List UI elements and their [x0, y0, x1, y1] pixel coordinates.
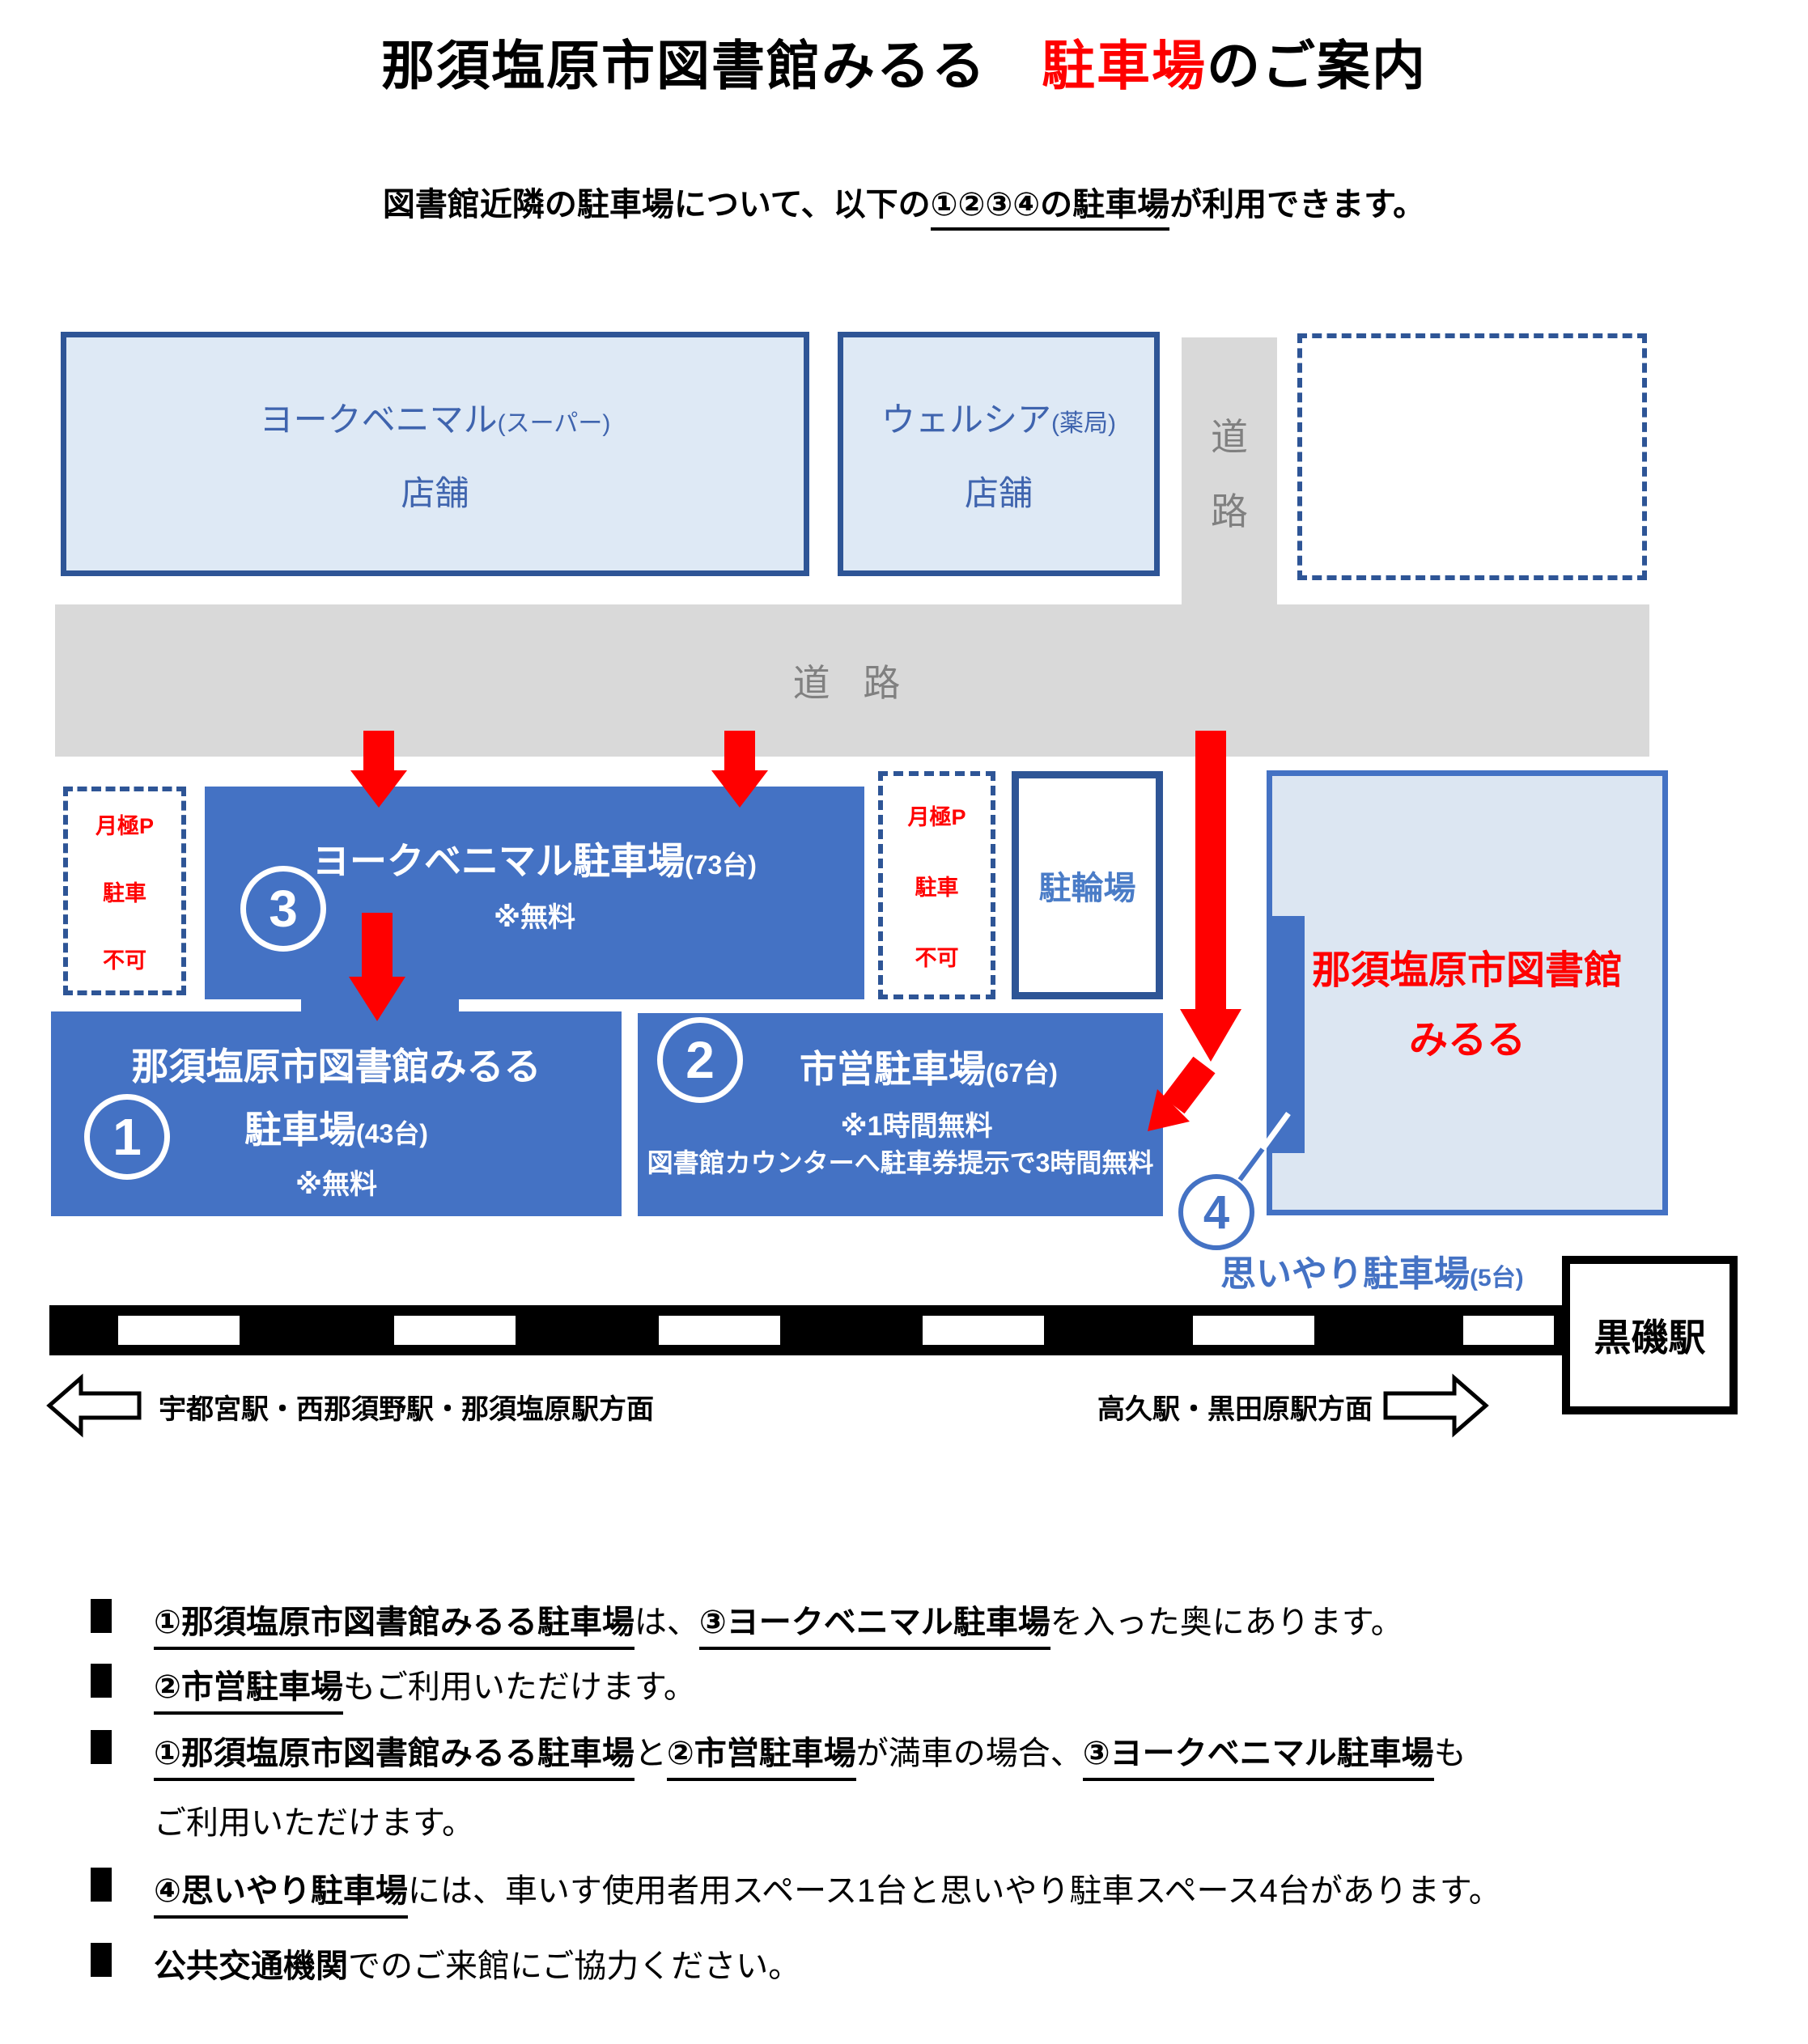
direction-right-label: 高久駅・黒田原駅方面	[1094, 1387, 1373, 1427]
subtitle-pre: 図書館近隣の駐車場について、以下の	[383, 187, 931, 223]
lot1-number-badge: 1	[84, 1094, 170, 1180]
railway-track	[49, 1305, 1562, 1355]
lot2-name: 市営駐車場	[800, 1048, 986, 1090]
note-segment: も	[1434, 1736, 1466, 1771]
vacant-lot-box	[1297, 333, 1647, 580]
bullet-square-icon	[91, 1664, 112, 1698]
lot3-capacity: (73台)	[685, 850, 757, 880]
lot3-number-badge: 3	[240, 866, 326, 952]
note-line: ①那須塩原市図書館みるる駐車場と②市営駐車場が満車の場合、③ヨークベニマル駐車場…	[154, 1727, 1466, 1774]
lot4-courtesy-parking-strip	[1267, 916, 1305, 1153]
monthly-left-line3: 不可	[103, 943, 146, 974]
lot2-municipal-parking: 市営駐車場(67台) ※1時間無料 図書館カウンターへ駐車券提示で3時間無料 2	[638, 1013, 1163, 1216]
railway-dash	[118, 1316, 240, 1345]
lot3-york-benimaru-parking: ヨークベニマル駐車場(73台) ※無料 3	[205, 787, 864, 999]
road-vertical-label-2: 路	[1211, 482, 1248, 536]
bicycle-parking-box: 駐輪場	[1012, 771, 1163, 999]
bicycle-parking-label: 駐輪場	[1039, 862, 1136, 909]
note-segment: が満車の場合、	[856, 1736, 1083, 1771]
lot2-number-badge: 2	[657, 1017, 743, 1103]
note-segment: ①那須塩原市図書館みるる駐車場	[154, 1736, 634, 1781]
road-vertical: 道 路	[1182, 337, 1277, 605]
store-york-name: ヨークベニマル	[260, 401, 498, 439]
note-segment: ご利用いただけます。	[154, 1805, 474, 1841]
kuroiso-station-label: 黒磯駅	[1594, 1308, 1706, 1362]
note-segment: には、車いす使用者用スペース1台と思いやり駐車スペース4台があります。	[408, 1873, 1501, 1909]
note-segment: ②市営駐車場	[154, 1669, 343, 1715]
store-welcia-label2: 店舗	[965, 466, 1033, 515]
lot4-label-text: 思いやり駐車場	[1220, 1254, 1470, 1294]
bullet-square-icon	[91, 1730, 112, 1764]
store-york-type: (スーパー)	[498, 410, 611, 437]
note-line: ご利用いただけます。	[154, 1796, 474, 1843]
lot4-number: 4	[1203, 1185, 1229, 1240]
direction-left-label: 宇都宮駅・西那須野駅・那須塩原駅方面	[159, 1387, 654, 1427]
subtitle-post: が利用できます。	[1169, 187, 1425, 223]
note-segment: ②市営駐車場	[667, 1736, 856, 1781]
page-title: 那須塩原市図書館みるる 駐車場のご案内	[0, 23, 1808, 100]
lot4-courtesy-parking-label: 思いやり駐車場(5台)	[1220, 1245, 1524, 1296]
lot4-number-badge: 4	[1178, 1174, 1254, 1250]
lot2-note2: 図書館カウンターへ駐車券提示で3時間無料	[638, 1143, 1163, 1180]
store-welcia: ウェルシア(薬局) 店舗	[838, 332, 1160, 576]
store-welcia-type: (薬局)	[1051, 410, 1116, 437]
lot1-name-line2: 駐車場	[244, 1109, 356, 1151]
lot2-number: 2	[685, 1030, 715, 1090]
monthly-parking-left: 月極P 駐車 不可	[63, 787, 186, 995]
monthly-right-line2: 駐車	[915, 870, 959, 901]
monthly-right-line1: 月極P	[907, 799, 966, 831]
lot3-name: ヨークベニマル駐車場	[312, 840, 685, 882]
bullet-square-icon	[91, 1943, 112, 1977]
note-line: 公共交通機関でのご来館にご協力ください。	[154, 1940, 800, 1987]
road-vertical-label-1: 道	[1211, 408, 1248, 461]
note-segment: でのご来館にご協力ください。	[348, 1949, 800, 1984]
page-subtitle: 図書館近隣の駐車場について、以下の①②③④の駐車場が利用できます。	[0, 178, 1808, 225]
monthly-left-line2: 駐車	[103, 876, 146, 907]
monthly-right-line3: 不可	[915, 940, 959, 972]
bullet-square-icon	[91, 1599, 112, 1633]
lot1-name-line1: 那須塩原市図書館みるる	[51, 1037, 622, 1091]
note-segment: を入った奥にあります。	[1050, 1605, 1403, 1640]
road-horizontal-label: 道 路	[793, 654, 912, 707]
store-welcia-name: ウェルシア	[881, 401, 1051, 439]
library-name-line1: 那須塩原市図書館	[1272, 938, 1662, 994]
store-york-benimaru: ヨークベニマル(スーパー) 店舗	[61, 332, 809, 576]
lot4-capacity: (5台)	[1470, 1265, 1524, 1291]
page-title-post: のご案内	[1207, 36, 1427, 95]
bullet-square-icon	[91, 1868, 112, 1902]
side-road-arrow-icon	[1180, 731, 1241, 1062]
note-segment: ③ヨークベニマル駐車場	[1083, 1736, 1434, 1781]
monthly-parking-right: 月極P 駐車 不可	[878, 771, 995, 999]
page-title-pre: 那須塩原市図書館みるる	[381, 36, 1042, 95]
monthly-left-line1: 月極P	[95, 808, 154, 840]
road-horizontal: 道 路	[55, 604, 1649, 757]
kuroiso-station-box: 黒磯駅	[1562, 1256, 1738, 1414]
lot1-library-parking: 那須塩原市図書館みるる 駐車場(43台) ※無料 1	[51, 1011, 622, 1216]
railway-dash	[923, 1316, 1044, 1345]
note-segment: 公共交通機関	[154, 1949, 348, 1984]
note-segment: ③ヨークベニマル駐車場	[699, 1605, 1050, 1650]
note-segment: ④思いやり駐車場	[154, 1873, 408, 1919]
lot2-note1: ※1時間無料	[638, 1104, 1163, 1143]
subtitle-underlined: ①②③④の駐車場	[931, 187, 1169, 231]
note-segment: もご利用いただけます。	[343, 1669, 696, 1705]
railway-dash	[659, 1316, 780, 1345]
direction-right-arrow-icon	[1386, 1378, 1486, 1433]
direction-left-arrow-icon	[49, 1378, 139, 1433]
note-line: ④思いやり駐車場には、車いす使用者用スペース1台と思いやり駐車スペース4台があり…	[154, 1864, 1501, 1911]
library-name-line2: みるる	[1272, 1007, 1662, 1064]
note-segment: と	[634, 1736, 667, 1771]
lot1-capacity: (43台)	[356, 1119, 428, 1148]
note-segment: は、	[634, 1605, 699, 1640]
note-line: ①那須塩原市図書館みるる駐車場は、③ヨークベニマル駐車場を入った奥にあります。	[154, 1596, 1403, 1643]
lot2-capacity: (67台)	[986, 1058, 1058, 1088]
library-building: 那須塩原市図書館 みるる	[1267, 770, 1668, 1215]
lot1-number: 1	[112, 1107, 142, 1167]
railway-dash	[1463, 1316, 1554, 1345]
note-segment: ①那須塩原市図書館みるる駐車場	[154, 1605, 634, 1650]
railway-dash	[394, 1316, 516, 1345]
store-york-label2: 店舗	[401, 466, 469, 515]
note-line: ②市営駐車場もご利用いただけます。	[154, 1660, 696, 1707]
parking-guide-flyer: { "page": { "title_pre": "那須塩原市図書館みるる ",…	[0, 0, 1808, 2044]
railway-dash	[1193, 1316, 1314, 1345]
lot3-number: 3	[269, 879, 298, 939]
page-title-highlight: 駐車場	[1042, 36, 1207, 95]
